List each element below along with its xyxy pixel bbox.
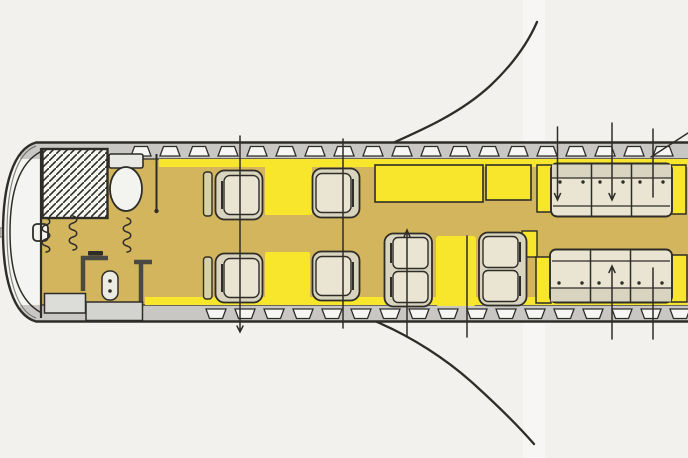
toilet-tank bbox=[109, 154, 143, 168]
cabin-window bbox=[293, 309, 313, 319]
cabin-window bbox=[189, 147, 209, 157]
cabin-window bbox=[363, 147, 383, 157]
cabin-window bbox=[235, 309, 255, 319]
cabin-window bbox=[525, 309, 545, 319]
cabin-window bbox=[421, 147, 441, 157]
divan-end-cap bbox=[671, 255, 687, 302]
cabin-window bbox=[160, 147, 180, 157]
club-table-port bbox=[265, 160, 312, 215]
cabin-window bbox=[380, 309, 400, 319]
cabin-window bbox=[264, 309, 284, 319]
sink-basin bbox=[102, 271, 118, 300]
floor-plan-canvas: Business jet cabin floor plan sketch bbox=[0, 0, 688, 458]
galley bbox=[43, 149, 108, 218]
sideboard-segment-1 bbox=[375, 165, 483, 202]
club-chair-4 bbox=[313, 252, 360, 301]
cabin-window bbox=[392, 147, 412, 157]
club-chair-1 bbox=[216, 171, 263, 220]
cabin-window bbox=[334, 147, 354, 157]
cabin-window bbox=[641, 309, 661, 319]
lav-partition-end bbox=[154, 209, 158, 213]
cabin-window bbox=[450, 147, 470, 157]
cabin-window bbox=[624, 147, 644, 157]
toilet-bowl bbox=[110, 167, 142, 211]
aircraft-floor-plan: Business jet cabin floor plan sketch bbox=[0, 0, 688, 458]
conference-seats-left bbox=[385, 234, 433, 307]
cabin-window bbox=[218, 147, 238, 157]
conference-group bbox=[385, 233, 527, 307]
cabin-window bbox=[351, 309, 371, 319]
sink-fixture-dot bbox=[108, 289, 112, 293]
shelf-mark bbox=[88, 251, 103, 256]
cabin-window bbox=[612, 309, 632, 319]
cabin-window bbox=[322, 309, 342, 319]
cabin-window bbox=[247, 147, 267, 157]
cabin-window bbox=[409, 309, 429, 319]
cabin-window bbox=[206, 309, 226, 319]
galley-hatch bbox=[43, 149, 108, 218]
cabin-window bbox=[537, 147, 557, 157]
cabin-window bbox=[438, 309, 458, 319]
cabin-window bbox=[566, 147, 586, 157]
sideboard-segment-2 bbox=[486, 165, 531, 200]
sink-fixture-dot bbox=[108, 279, 112, 283]
conference-table bbox=[436, 236, 476, 306]
entry-door-panel bbox=[45, 294, 86, 314]
divan-end-cap bbox=[671, 165, 686, 214]
entry-airstair bbox=[86, 302, 143, 321]
side-console bbox=[204, 172, 213, 216]
cabin-window bbox=[670, 309, 688, 319]
divan-end-cap bbox=[536, 257, 551, 303]
cabin-window bbox=[467, 309, 487, 319]
club-table-starboard bbox=[265, 252, 310, 305]
conference-seats-right bbox=[479, 233, 527, 306]
side-console bbox=[204, 257, 213, 299]
cabin-window bbox=[479, 147, 499, 157]
divan-end-cap bbox=[537, 165, 552, 212]
cabin-window bbox=[508, 147, 528, 157]
cabin-window bbox=[554, 309, 574, 319]
cabin-window bbox=[496, 309, 516, 319]
cabin-window bbox=[583, 309, 603, 319]
windows-bottom bbox=[206, 309, 688, 319]
club-chair-3 bbox=[216, 254, 263, 303]
club-chair-2 bbox=[313, 169, 360, 218]
cabin-window bbox=[276, 147, 296, 157]
cabin-window bbox=[305, 147, 325, 157]
